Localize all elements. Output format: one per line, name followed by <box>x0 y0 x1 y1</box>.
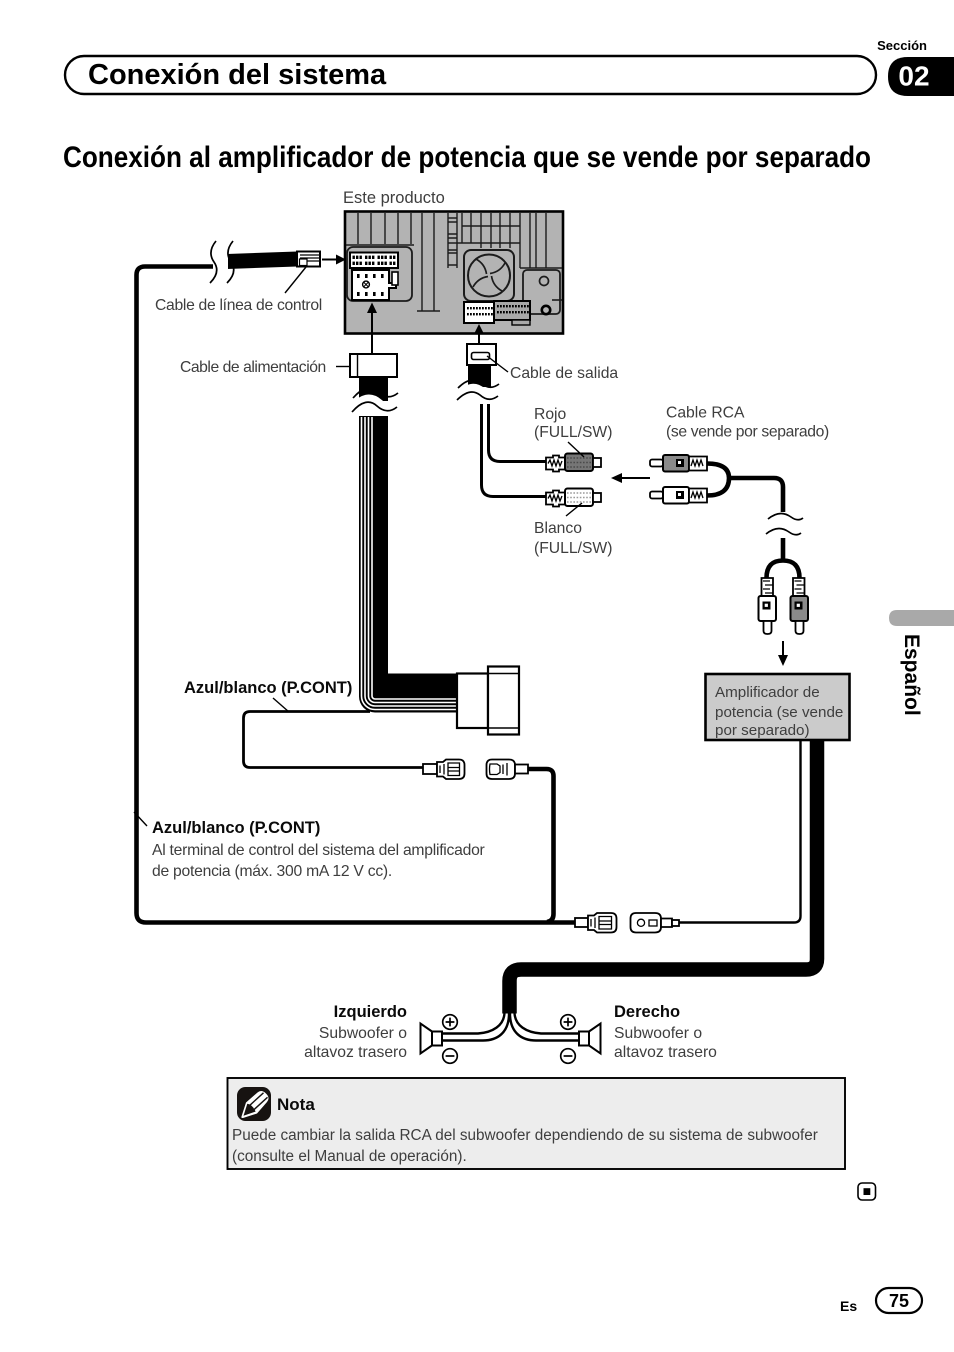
svg-text:por separado): por separado) <box>715 722 810 739</box>
svg-text:Cable de salida: Cable de salida <box>510 365 618 382</box>
svg-text:Blanco: Blanco <box>534 520 582 537</box>
svg-text:Al terminal de control del sis: Al terminal de control del sistema del a… <box>152 842 485 859</box>
svg-text:02: 02 <box>898 61 929 92</box>
svg-text:Sección: Sección <box>877 38 927 53</box>
svg-text:(consulte el Manual de operaci: (consulte el Manual de operación). <box>232 1148 467 1165</box>
svg-text:Subwoofer o: Subwoofer o <box>614 1025 702 1042</box>
svg-text:Izquierdo: Izquierdo <box>334 1003 407 1021</box>
svg-text:Rojo: Rojo <box>534 406 567 423</box>
svg-text:Azul/blanco (P.CONT): Azul/blanco (P.CONT) <box>184 679 352 697</box>
svg-text:Nota: Nota <box>277 1095 315 1114</box>
svg-text:Conexión al amplificador de po: Conexión al amplificador de potencia que… <box>63 141 871 174</box>
svg-text:Este producto: Este producto <box>343 189 445 207</box>
svg-text:Cable de línea de control: Cable de línea de control <box>155 297 322 314</box>
svg-text:Puede cambiar la salida RCA de: Puede cambiar la salida RCA del subwoofe… <box>232 1127 818 1144</box>
svg-text:Conexión del sistema: Conexión del sistema <box>88 59 387 91</box>
svg-text:(FULL/SW): (FULL/SW) <box>534 424 612 441</box>
svg-text:(FULL/SW): (FULL/SW) <box>534 540 612 557</box>
svg-text:Cable RCA: Cable RCA <box>666 405 745 422</box>
svg-text:(se vende por separado): (se vende por separado) <box>666 424 829 441</box>
svg-text:altavoz trasero: altavoz trasero <box>304 1044 407 1061</box>
svg-text:altavoz trasero: altavoz trasero <box>614 1044 717 1061</box>
svg-text:potencia (se vende: potencia (se vende <box>715 704 843 721</box>
svg-text:Español: Español <box>900 634 923 716</box>
svg-text:de potencia (máx. 300 mA 12 V: de potencia (máx. 300 mA 12 V cc). <box>152 863 392 880</box>
svg-text:Cable de alimentación: Cable de alimentación <box>180 359 326 376</box>
svg-text:75: 75 <box>889 1291 909 1311</box>
svg-text:Derecho: Derecho <box>614 1003 680 1021</box>
svg-text:Amplificador de: Amplificador de <box>715 684 820 701</box>
svg-text:Es: Es <box>840 1298 857 1314</box>
svg-text:Subwoofer o: Subwoofer o <box>319 1025 407 1042</box>
svg-text:Azul/blanco (P.CONT): Azul/blanco (P.CONT) <box>152 819 320 837</box>
